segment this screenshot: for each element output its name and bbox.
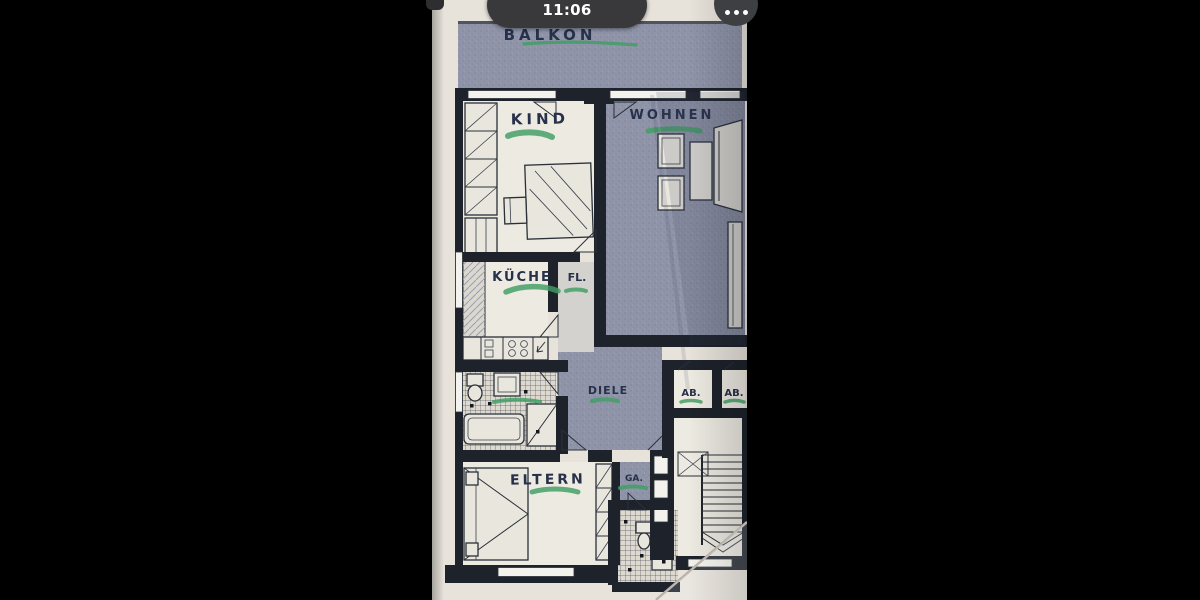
status-pill[interactable]: Heute 11:06 [487,0,647,28]
corner-ui-fragment [426,0,444,10]
label-diele: DIELE [588,384,628,397]
screen: BALKON KIND WOHNEN KÜCHE FL. DIELE AB. A… [0,0,1200,600]
kitchen-counter [463,337,548,360]
label-kind: KIND [511,109,570,128]
label-fl: FL. [568,271,587,284]
pill-time-label: 11:06 [542,1,591,19]
label-kueche: KÜCHE [492,269,552,285]
label-eltern: ELTERN [510,471,586,488]
kind-wardrobe [465,103,497,254]
bathroom [462,370,557,450]
ellipsis-icon [725,10,748,15]
floorplan-photo[interactable]: BALKON KIND WOHNEN KÜCHE FL. DIELE AB. A… [432,0,747,600]
floorplan-drawing: BALKON KIND WOHNEN KÜCHE FL. DIELE AB. A… [432,0,747,600]
pill-date-label: Heute [550,0,583,1]
label-ga: GA. [625,474,643,484]
